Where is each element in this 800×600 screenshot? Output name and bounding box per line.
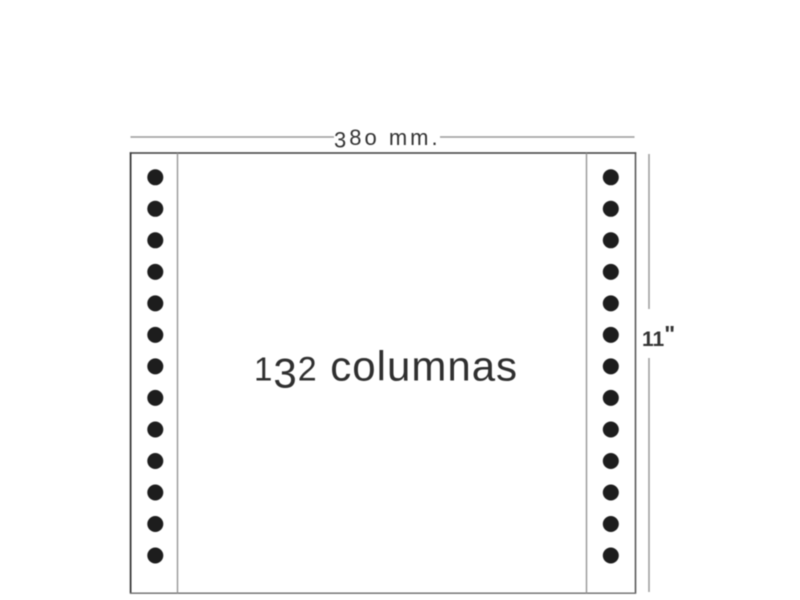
svg-text:132 columnas: 132 columnas bbox=[254, 343, 518, 397]
svg-text:11": 11" bbox=[642, 321, 675, 351]
svg-text:38o mm.: 38o mm. bbox=[334, 125, 441, 153]
